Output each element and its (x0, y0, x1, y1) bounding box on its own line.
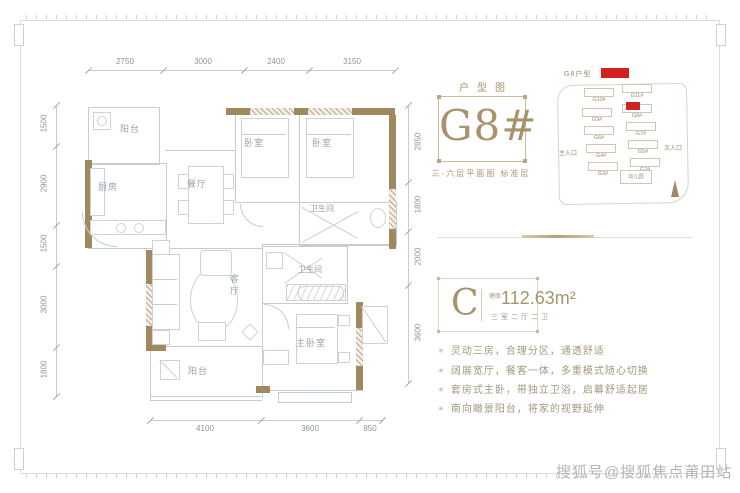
building-footprint (630, 158, 660, 167)
bullet-icon: ✳ (438, 406, 445, 413)
highlight-text: 灵动三房，合理分区，通透舒适 (451, 346, 605, 357)
wall-line (235, 202, 299, 203)
furniture-sofa (152, 254, 180, 330)
building-number-box: G8# (438, 96, 526, 162)
wall-segment (389, 115, 396, 189)
room-label-balcony-bottom: 阳台 (188, 364, 208, 377)
side-entrance-label: 次入口 (664, 143, 682, 152)
dimension-label: 1500 (40, 226, 49, 262)
building-label: G4# (588, 153, 615, 158)
unit-box-divider (481, 289, 482, 321)
building-footprint (628, 140, 658, 149)
unit-info-box: C 建面112.63m² 三室二厅二卫 (438, 278, 538, 332)
room-label-master: 主卧室 (296, 336, 326, 349)
building-label: G6# (586, 135, 613, 140)
dimension-label: 3000 (183, 57, 223, 66)
building-footprint (622, 84, 652, 93)
wall-segment (226, 108, 250, 115)
furniture-bed-pillow-line (307, 134, 351, 135)
dimension-label: 1800 (414, 187, 423, 223)
wall-segment (256, 386, 270, 393)
furniture-sink (266, 252, 283, 269)
building-label: G7# (628, 131, 655, 136)
dimension-label: 1500 (40, 106, 49, 142)
kindergarten-label: 幼儿园 (623, 172, 649, 182)
main-entrance-label: 主入口 (559, 148, 577, 157)
building-footprint (588, 162, 618, 171)
unit-letter: C (451, 283, 479, 324)
wall-line (150, 396, 262, 397)
wall-segment (389, 229, 396, 249)
dimension-label: 1800 (40, 352, 49, 388)
furniture-burner (116, 223, 126, 233)
sitemap-building: G3# (588, 162, 618, 177)
dim-line-right (408, 105, 409, 383)
bullet-icon: ✳ (438, 348, 445, 355)
furniture-kitchen-counter (90, 220, 166, 235)
highlight-item: ✳灵动三房，合理分区，通透舒适 (438, 342, 605, 357)
sitemap-building: G10# (584, 88, 614, 103)
dimension-label: 3150 (332, 57, 372, 66)
furniture-chair (178, 200, 189, 215)
furniture-nightstand (338, 352, 350, 363)
highlight-item: ✳阔展宽厅，餐客一体，多重模式随心切换 (438, 362, 649, 377)
furniture-chair (223, 174, 234, 189)
sitemap-building: G6# (584, 126, 614, 141)
box-corner-ornament (437, 95, 441, 99)
room-label-bedroom-b: 卧室 (312, 136, 332, 149)
box-corner-ornament (437, 159, 441, 163)
furniture-side-table (152, 240, 170, 255)
building-label: G5# (630, 149, 657, 154)
wall-segment (146, 344, 166, 351)
box-corner-ornament (523, 95, 527, 99)
frame-corner (716, 24, 726, 46)
furniture-sofa-cushion-line (153, 304, 177, 305)
furniture-toilet (370, 208, 386, 228)
building-label: G3# (590, 171, 617, 176)
furniture-wardrobe (286, 284, 346, 301)
section-divider-accent (522, 235, 594, 238)
room-label-balcony-top: 阳台 (110, 122, 150, 135)
bullet-icon: ✳ (438, 387, 445, 394)
wall-line (235, 112, 236, 202)
building-footprint (584, 88, 614, 97)
building-footprint (582, 108, 612, 117)
room-label-bedroom-a: 卧室 (244, 136, 264, 149)
wall-line (150, 346, 262, 347)
dimension-label: 2000 (414, 239, 423, 275)
wall-segment (356, 366, 363, 390)
dimension-label: 2900 (40, 166, 49, 202)
wall-line (165, 150, 235, 151)
box-corner-ornament (523, 159, 527, 163)
room-label-dining: 餐厅 (187, 177, 207, 190)
compass-icon (671, 180, 679, 197)
furniture-armchair (200, 250, 232, 276)
room-label-bath-a: 卫生间 (310, 203, 334, 214)
dimension-label: 3600 (290, 424, 330, 433)
bay-window (278, 392, 352, 403)
unit-layout: 三室二厅二卫 (491, 312, 551, 322)
building-label: G9# (584, 117, 611, 122)
window-segment (308, 108, 352, 115)
wall-line (150, 400, 262, 401)
floor-note: 三-六层平面图 标准层 (428, 168, 534, 179)
window-segment (250, 108, 294, 115)
furniture-burner (134, 223, 144, 233)
sitemap-legend-swatch (601, 68, 629, 78)
dim-line-left (56, 105, 57, 396)
furniture-dresser (263, 350, 289, 365)
dimension-label: 3000 (40, 287, 49, 323)
building-footprint (626, 122, 656, 131)
furniture-side-table (152, 330, 170, 345)
highlighted-unit-marker (626, 102, 640, 110)
sitemap-building: G7# (626, 122, 656, 137)
furniture-washer-drum (97, 116, 107, 126)
frame-corner (14, 24, 24, 46)
highlight-text: 套房式主卧，带独立卫浴，启幕舒适起居 (451, 385, 649, 396)
bullet-icon: ✳ (438, 368, 445, 375)
wall-line (150, 346, 151, 400)
watermark: 搜狐号@搜狐焦点莆田站 (556, 461, 732, 482)
furniture-coffee-table (198, 322, 226, 341)
dim-line-bottom (150, 420, 382, 421)
box-corner-ornament (536, 330, 539, 333)
building-footprint (586, 144, 616, 153)
building-label: G8# (624, 113, 651, 118)
box-corner-ornament (437, 330, 440, 333)
sitemap-building: G11# (622, 84, 652, 99)
sitemap-building: G9# (582, 108, 612, 123)
highlight-text: 南向瞰景阳台，将家的视野延伸 (451, 404, 605, 415)
dimension-label: 850 (350, 424, 390, 433)
box-corner-ornament (437, 277, 440, 280)
wall-segment (294, 108, 308, 115)
building-label: G10# (586, 97, 613, 102)
sitemap-building: G5# (628, 140, 658, 155)
kindergarten-box: 幼儿园 (620, 170, 652, 184)
furniture-bed-pillow-line (297, 327, 335, 328)
dimension-label: 2750 (105, 57, 145, 66)
highlight-item: ✳套房式主卧，带独立卫浴，启幕舒适起居 (438, 381, 649, 396)
furniture-sofa-cushion-line (153, 279, 177, 280)
room-label-bath-b: 卫生间 (298, 264, 322, 275)
highlight-text: 阔展宽厅，餐客一体，多重模式随心切换 (451, 366, 649, 377)
unit-area: 112.63m² (501, 288, 576, 308)
wall-segment (352, 108, 395, 115)
dimension-label: 2400 (256, 57, 296, 66)
sitemap-building: G4# (586, 144, 616, 159)
room-label-living: 客厅 (228, 274, 241, 298)
dimension-label: 2850 (414, 124, 423, 160)
furniture-bed-pillow-line (242, 134, 286, 135)
sitemap-legend-label: G8户型 (564, 69, 591, 79)
furniture-chair (223, 200, 234, 215)
building-footprint (584, 126, 614, 135)
building-label: G11# (624, 93, 651, 98)
area-prefix: 建面 (489, 294, 501, 300)
highlight-item: ✳南向瞰景阳台，将家的视野延伸 (438, 400, 605, 415)
furniture-dining-table (188, 166, 224, 224)
plan-type-title: 户型图 (438, 79, 526, 94)
dimension-label: 4100 (185, 424, 225, 433)
building-number: G8# (439, 101, 525, 150)
wall-line (262, 390, 362, 391)
box-corner-ornament (536, 277, 539, 280)
floorplan-page: 2750 3000 2400 3150 1500 2900 1500 3000 … (0, 0, 740, 493)
room-label-kitchen: 厨房 (98, 180, 118, 193)
dimension-label: 3600 (414, 315, 423, 351)
window-segment (389, 189, 396, 229)
frame-corner (14, 448, 24, 470)
frame-ticks-top (26, 15, 714, 19)
furniture-nightstand (338, 315, 350, 326)
